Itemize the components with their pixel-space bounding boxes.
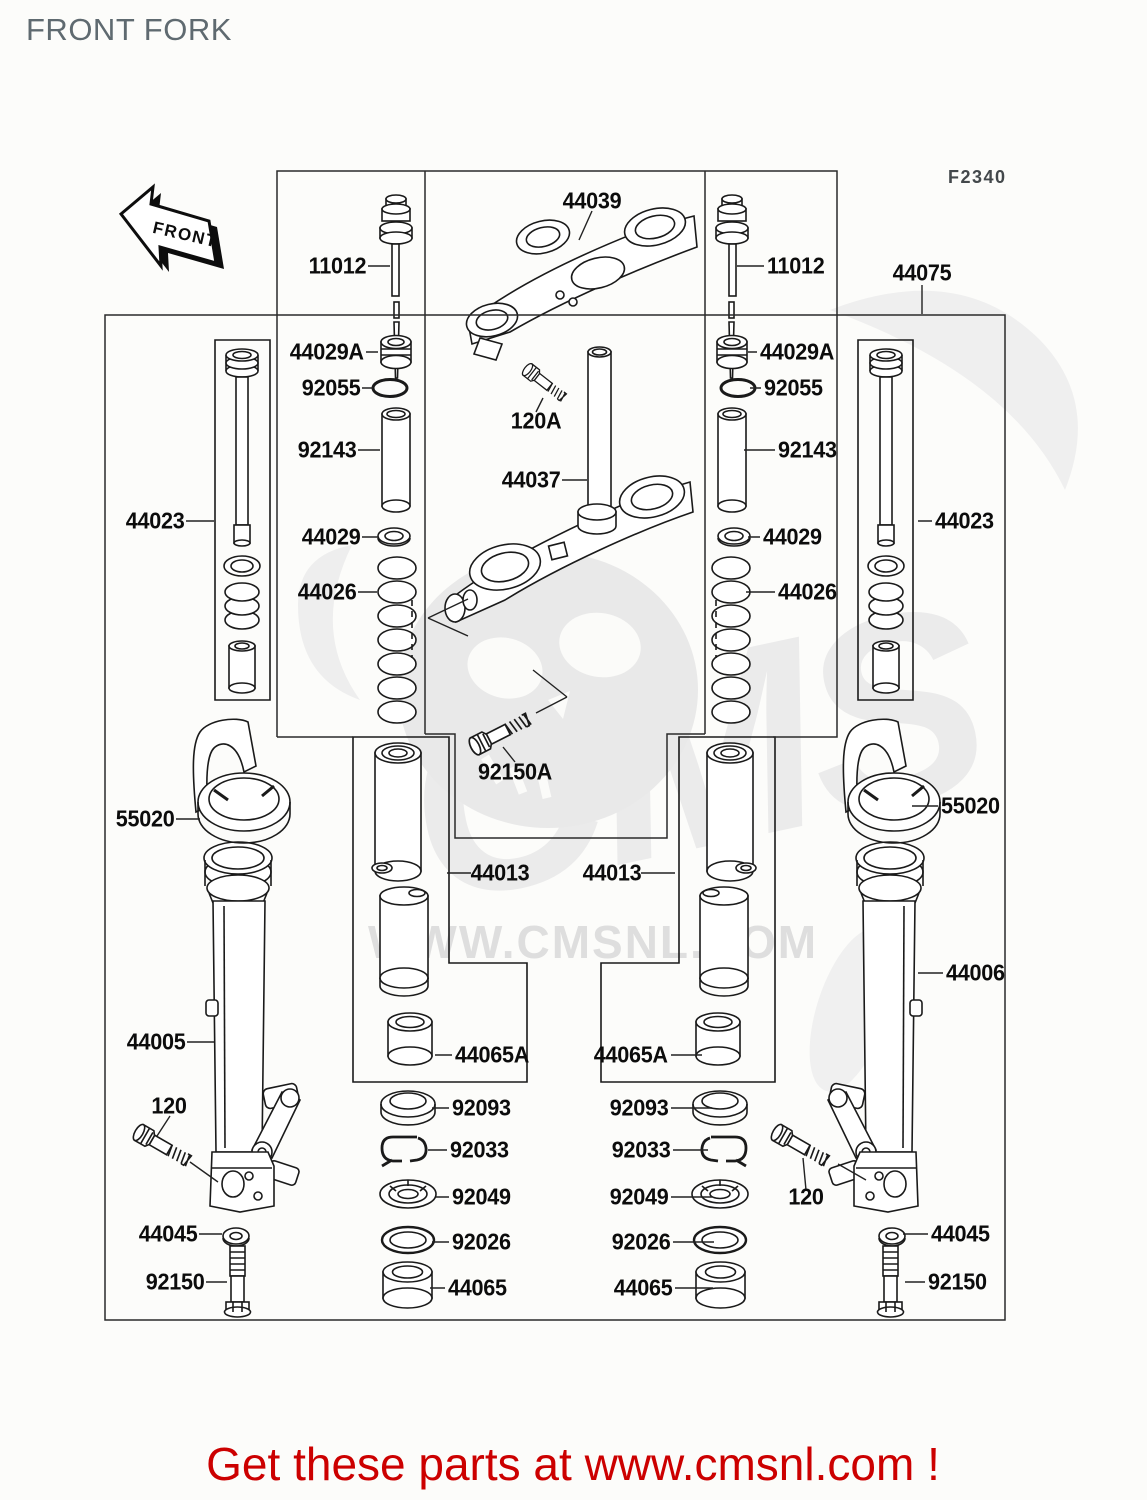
part-label-92033-2[interactable]: 92033: [611, 1139, 670, 1162]
part-label-92143[interactable]: 92143: [297, 439, 356, 462]
spring-seat-drawing: [378, 528, 410, 546]
footer-cta-link[interactable]: Get these parts at www.cmsnl.com !: [206, 1437, 940, 1492]
part-label-44029A[interactable]: 44029A: [290, 341, 364, 364]
seal-stack-drawing: [380, 1091, 436, 1308]
part-label-44039[interactable]: 44039: [563, 190, 622, 213]
part-label-44006[interactable]: 44006: [946, 962, 1005, 985]
part-label-44037[interactable]: 44037: [501, 469, 560, 492]
part-label-120[interactable]: 120: [151, 1095, 186, 1118]
part-label-55020[interactable]: 55020: [115, 808, 174, 831]
fender-bracket-drawing: [193, 719, 290, 843]
part-label-44026-2[interactable]: 44026: [778, 581, 837, 604]
part-label-92026-2[interactable]: 92026: [611, 1231, 670, 1254]
top-clamp-drawing: [463, 202, 697, 360]
part-label-11012[interactable]: 11012: [308, 255, 366, 278]
pinch-bolt-right: [769, 1123, 831, 1169]
clamp-bolt-120a: [521, 362, 568, 403]
part-label-55020-2[interactable]: 55020: [941, 795, 1000, 818]
part-label-120A[interactable]: 120A: [511, 410, 562, 433]
fork-leg-drawing: [204, 842, 300, 1212]
inner-tube-drawing: [372, 743, 428, 996]
part-label-92143-2[interactable]: 92143: [778, 439, 837, 462]
part-label-44045[interactable]: 44045: [138, 1223, 197, 1246]
part-label-11012-2[interactable]: 11012: [767, 255, 825, 278]
part-label-44023[interactable]: 44023: [125, 510, 184, 533]
spacer-tube-drawing: [382, 408, 410, 512]
drain-bolt-drawing: [225, 1246, 251, 1317]
part-label-44065A-2[interactable]: 44065A: [594, 1044, 668, 1067]
watermark-site-text: WWW.CMSNL.COM: [368, 916, 818, 968]
part-label-92150A[interactable]: 92150A: [478, 761, 552, 784]
part-label-44005[interactable]: 44005: [126, 1031, 185, 1054]
part-label-92049[interactable]: 92049: [452, 1186, 511, 1209]
part-label-92093-2[interactable]: 92093: [609, 1097, 668, 1120]
washer-drawing: [223, 1228, 249, 1246]
part-label-44065[interactable]: 44065: [448, 1277, 507, 1300]
part-label-92150[interactable]: 92150: [145, 1271, 204, 1294]
part-label-44065A[interactable]: 44065A: [455, 1044, 529, 1067]
part-label-44075[interactable]: 44075: [893, 262, 952, 285]
front-direction-arrow: FRONT: [121, 187, 224, 272]
part-label-44045-2[interactable]: 44045: [931, 1223, 990, 1246]
part-label-92093[interactable]: 92093: [452, 1097, 511, 1120]
part-label-44065-2[interactable]: 44065: [613, 1277, 672, 1300]
part-label-44029-2[interactable]: 44029: [763, 526, 822, 549]
part-label-44029A-2[interactable]: 44029A: [760, 341, 834, 364]
part-label-92049-2[interactable]: 92049: [609, 1186, 668, 1209]
part-label-44029[interactable]: 44029: [301, 526, 360, 549]
part-label-92055[interactable]: 92055: [301, 377, 360, 400]
parts-diagram-page: CMS WWW.CMSNL.COM: [0, 0, 1147, 1500]
guide-bushing-drawing: [388, 1013, 432, 1065]
part-label-44026[interactable]: 44026: [297, 581, 356, 604]
part-label-92055-2[interactable]: 92055: [764, 377, 823, 400]
damper-rod-drawing: [224, 349, 260, 693]
page-title: FRONT FORK: [26, 13, 232, 47]
part-label-120-2[interactable]: 120: [788, 1186, 823, 1209]
o-ring-drawing: [373, 380, 407, 397]
part-label-92150-2[interactable]: 92150: [928, 1271, 987, 1294]
part-label-92026[interactable]: 92026: [452, 1231, 511, 1254]
part-label-44013-2[interactable]: 44013: [583, 862, 642, 885]
part-label-44013[interactable]: 44013: [471, 862, 530, 885]
fork-cap-drawing: [381, 336, 411, 369]
figure-code: F2340: [948, 168, 1007, 186]
part-label-92033[interactable]: 92033: [450, 1139, 509, 1162]
part-label-44023-2[interactable]: 44023: [935, 510, 994, 533]
